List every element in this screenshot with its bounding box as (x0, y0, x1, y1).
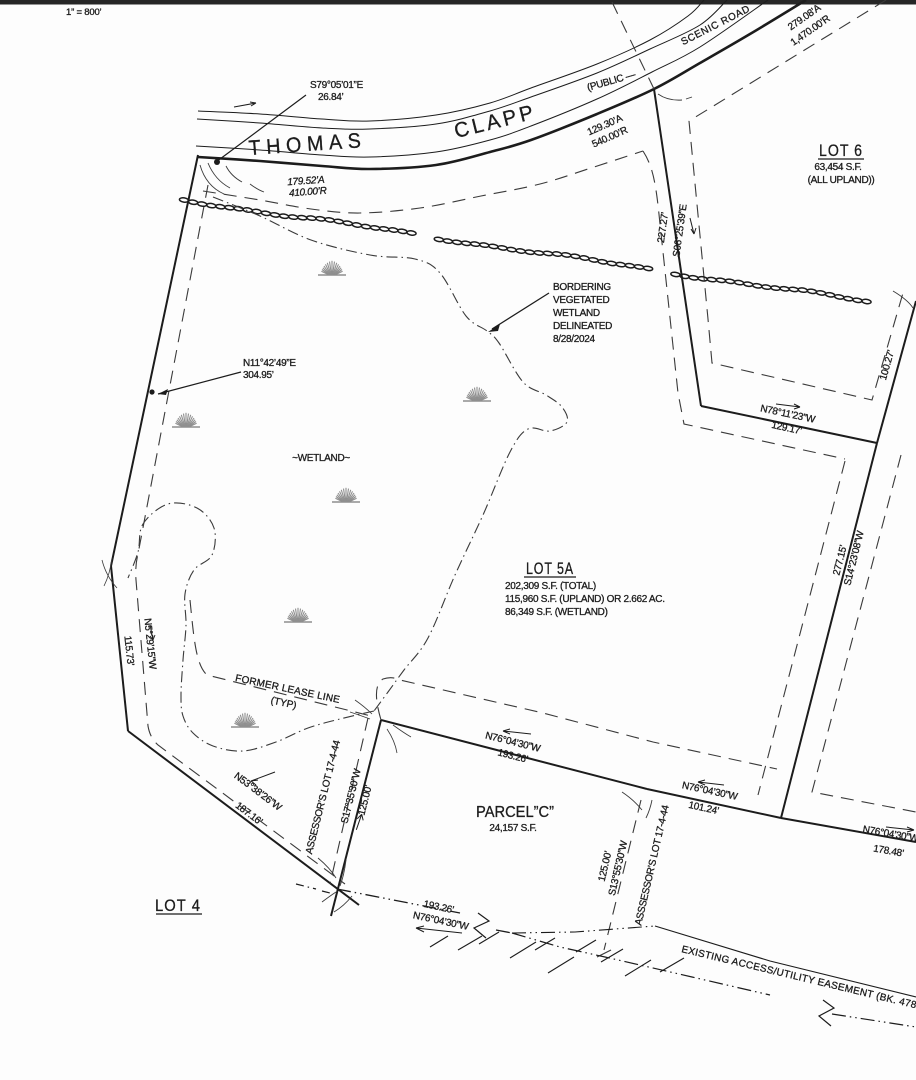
svg-text:63,454 S.F.: 63,454 S.F. (814, 162, 861, 173)
svg-text:304.95’: 304.95’ (243, 370, 274, 381)
svg-text:LOT 4: LOT 4 (155, 896, 201, 915)
svg-text:115,960 S.F. (UPLAND) OR 2.662: 115,960 S.F. (UPLAND) OR 2.662 AC. (505, 594, 665, 605)
svg-text:PARCEL”C”: PARCEL”C” (476, 804, 554, 821)
svg-text:LOT 5A: LOT 5A (526, 559, 574, 578)
svg-text:S79°05’01”E: S79°05’01”E (310, 80, 364, 91)
svg-text:~WETLAND~: ~WETLAND~ (292, 453, 350, 464)
svg-text:86,349 S.F. (WETLAND): 86,349 S.F. (WETLAND) (505, 607, 608, 618)
svg-text:DELINEATED: DELINEATED (553, 321, 612, 332)
svg-text:1” = 800’: 1” = 800’ (66, 7, 102, 18)
svg-text:N11°42’49”E: N11°42’49”E (243, 358, 296, 369)
svg-text:24,157 S.F.: 24,157 S.F. (489, 823, 536, 834)
svg-text:LOT 6: LOT 6 (819, 141, 863, 160)
svg-text:202,309 S.F. (TOTAL): 202,309 S.F. (TOTAL) (505, 581, 596, 592)
svg-text:26.84’: 26.84’ (318, 92, 344, 103)
svg-text:8/28/2024: 8/28/2024 (553, 334, 596, 345)
svg-text:(ALL UPLAND)): (ALL UPLAND)) (808, 175, 875, 186)
svg-text:VEGETATED: VEGETATED (553, 295, 609, 306)
svg-text:BORDERING: BORDERING (553, 282, 611, 293)
svg-text:WETLAND: WETLAND (553, 308, 600, 319)
